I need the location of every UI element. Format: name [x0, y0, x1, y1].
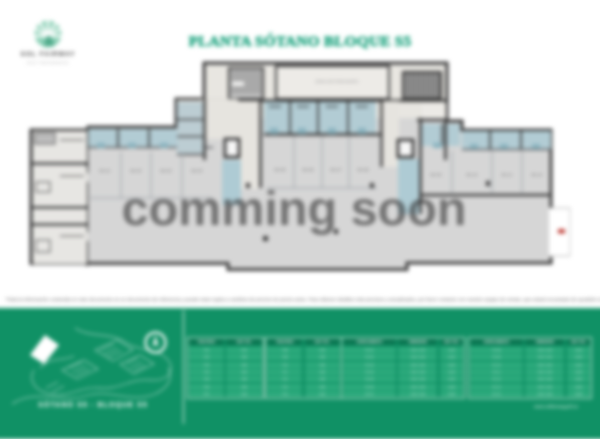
svg-text:B1-01: B1-01	[100, 168, 111, 173]
svg-text:B1-07: B1-07	[331, 167, 342, 172]
svg-text:B1-09: B1-09	[431, 172, 442, 177]
svg-text:ZONA DE RODADURA: ZONA DE RODADURA	[315, 79, 359, 84]
svg-text:B1-06: B1-06	[303, 167, 314, 172]
svg-text:B1-08: B1-08	[358, 167, 369, 172]
svg-text:B1-03: B1-03	[161, 168, 172, 173]
svg-text:B1-05: B1-05	[275, 167, 286, 172]
svg-text:B1-04: B1-04	[192, 168, 203, 173]
svg-text:B1-12: B1-12	[532, 172, 543, 177]
svg-text:B1-02: B1-02	[131, 168, 142, 173]
svg-text:B1-11: B1-11	[502, 172, 513, 177]
svg-text:B1-10: B1-10	[467, 172, 478, 177]
